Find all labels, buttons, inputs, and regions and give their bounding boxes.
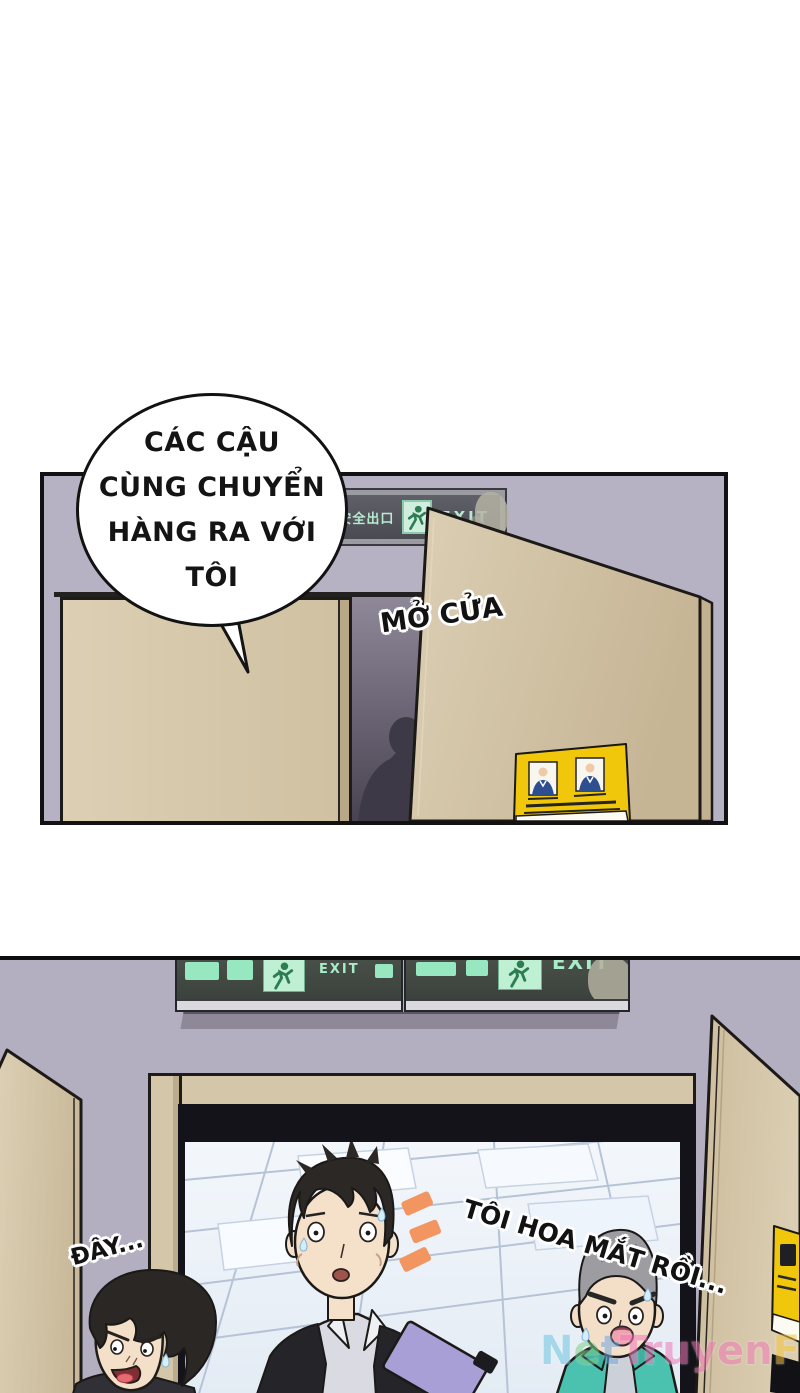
door-notice-sign bbox=[514, 744, 630, 821]
comic-page: { "panel1": { "speech_bubble": { "lines"… bbox=[0, 0, 800, 1393]
exit-sign-left: EXIT bbox=[175, 958, 403, 1012]
running-man-icon bbox=[263, 958, 305, 992]
personnel-photo bbox=[529, 762, 557, 795]
right-door bbox=[364, 500, 724, 821]
watermark: NetTruyenFE bbox=[540, 1328, 800, 1374]
exit-text: EXIT bbox=[319, 962, 360, 977]
speech-line: CÁC CẬU bbox=[144, 420, 280, 465]
comic-panel-2: EXIT EXIT bbox=[0, 956, 800, 1393]
character-left bbox=[72, 1260, 232, 1393]
sign-shadow bbox=[181, 1012, 620, 1029]
speech-line: HÀNG RA VỚI bbox=[108, 510, 317, 555]
speech-line: TÔI bbox=[186, 555, 239, 600]
exit-sign-right: EXIT bbox=[404, 958, 630, 1012]
running-man-icon bbox=[498, 958, 542, 990]
door-side-sign bbox=[772, 1226, 800, 1342]
door-lintel bbox=[148, 1073, 696, 1107]
speech-line: CÙNG CHUYỂN bbox=[99, 465, 325, 510]
speech-bubble: CÁC CẬU CÙNG CHUYỂN HÀNG RA VỚI TÔI bbox=[76, 393, 348, 627]
personnel-photo bbox=[576, 758, 604, 791]
left-door-edge bbox=[338, 600, 349, 822]
